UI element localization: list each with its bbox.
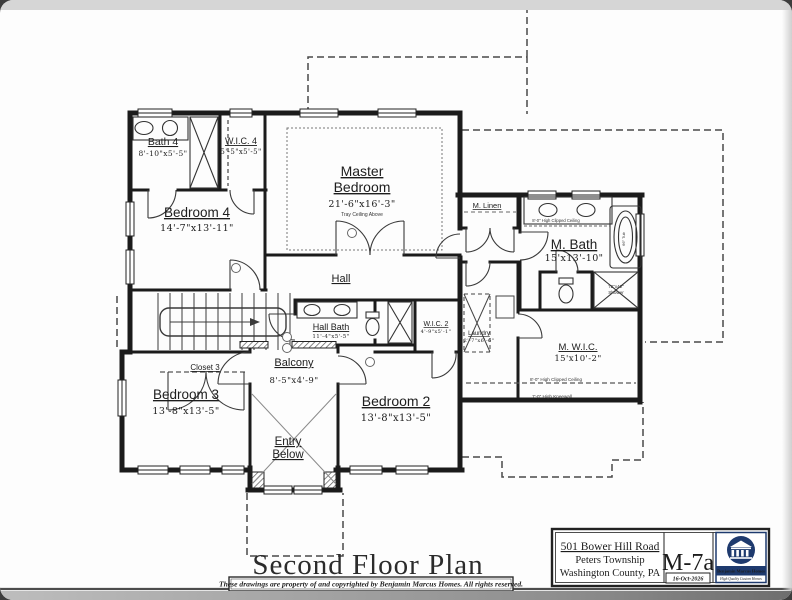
room-label-laundry: Laundry [468,331,490,337]
room-dims-bedroom2: 13'-8"x13'-5" [361,413,431,424]
sink-icon [163,121,178,136]
room-label-entry-2: Below [272,449,304,461]
room-label-hall: Hall [332,273,351,285]
room-label-bedroom2: Bedroom 2 [362,393,431,409]
room-dims-bedroom4: 14'-7"x13'-11" [160,223,234,234]
room-label-master-2: Bedroom [334,179,391,195]
logo-company-name: Benjamin Marcus Homes [717,569,765,574]
door-arc [518,314,542,338]
room-label-bath4: Bath 4 [148,136,179,148]
room-dims-wic4: 5'-5"x5'-5" [220,148,261,156]
title-block: 501 Bower Hill Road Peters Township Wash… [552,529,769,586]
toilet-icon [135,122,153,135]
room-label-mbath: M. Bath [551,237,598,252]
window [126,250,134,284]
kneewall-note: 7'-0" High Kneewall [532,394,572,399]
room-dims-laundry: 2'-7"x6'-6" [464,338,495,344]
company-logo: Benjamin Marcus Homes High Quality Custo… [716,533,766,583]
address-line2: Peters Township [575,555,644,566]
room-label-wic4: W.I.C. 4 [225,136,257,146]
floor-plan-svg: Bath 4 8'-10"x5'-5" W.I.C. 4 5'-5"x5'-5"… [0,0,792,600]
door-arc [338,356,366,384]
room-dims-balcony: 8'-5"x4'-9" [269,376,318,386]
sink-icon [539,204,557,217]
window [118,380,126,416]
window [572,191,600,199]
window [300,109,338,117]
room-label-mwic: M. W.I.C. [558,342,597,353]
window [378,109,416,117]
logo-circle [727,536,755,564]
tray-ceiling-note: Tray Ceiling Above [341,212,383,218]
shower-size-note-2: Shower [608,290,624,295]
toilet-icon [559,278,573,303]
room-dims-hallbath: 11'-4"x5'-5" [312,334,349,340]
tub-size-note: 66" Tub [621,231,626,245]
clipped-ceiling-note-mwic: 8'-0" High Clipped Ceiling [530,377,582,382]
porch-pier [252,472,264,488]
shower-size-note-1: 72"x42" [608,284,624,289]
sheet-date: 16-Oct-2026 [673,577,704,583]
room-label-closet3: Closet 3 [190,363,220,372]
copyright-box: These drawings are property of and copyr… [219,577,523,591]
shower-icon [190,117,218,188]
logo-tagline: High Quality Custom Homes [719,577,762,581]
sink-icon [304,305,320,316]
sheet-number: M-7a [662,550,714,576]
window [126,202,134,236]
vanity [297,302,357,318]
window [528,191,556,199]
sink-icon [577,204,595,217]
room-label-entry-1: Entry [275,436,302,448]
room-dims-bedroom3: 13'-8"x13'-5" [152,406,219,417]
room-label-bedroom4: Bedroom 4 [164,205,231,220]
sink-icon [334,305,350,316]
door-arc [466,262,490,286]
copyright-notice: These drawings are property of and copyr… [219,580,523,589]
room-label-wic2: W.I.C. 2 [424,321,449,328]
window [180,466,210,474]
room-dims-wic2: 4'-9"x5'-1" [421,329,452,335]
room-dims-mwic: 15'x10'-2" [554,354,601,364]
window [396,466,428,474]
door-arc [432,352,456,378]
address-line3: Washington County, PA [560,568,661,579]
stair-direction-arrow [250,318,260,326]
plan-title: Second Floor Plan [252,549,483,581]
window [350,466,382,474]
porch-pier [324,472,336,488]
laundry-sink [496,296,514,318]
window [222,466,244,474]
scan-edge-right [782,0,792,600]
room-label-mlinen: M. Linen [473,201,502,210]
room-label-bedroom3: Bedroom 3 [153,387,219,402]
room-dims-bath4: 8'-10"x5'-5" [139,149,188,158]
door-arc [490,228,514,252]
room-label-balcony: Balcony [274,357,314,369]
toilet-icon [366,312,379,336]
scan-edge-bottom [0,591,792,600]
door-arc [466,228,490,252]
address-line1: 501 Bower Hill Road [561,541,660,553]
drawing-sheet: Bath 4 8'-10"x5'-5" W.I.C. 4 5'-5"x5'-5"… [0,0,792,600]
room-label-hallbath: Hall Bath [313,322,350,332]
linen-cabinet [388,302,412,343]
door-arc [230,190,254,214]
window [138,109,172,117]
room-dims-master: 21'-6"x16'-3" [328,199,395,210]
window [264,486,292,494]
room-dims-mbath: 15'x13'-10" [545,253,604,264]
door-arc [218,352,250,384]
window [138,466,168,474]
room-label-master-1: Master [341,163,384,179]
clipped-ceiling-note-mbath: 8'-0" High Clipped Ceiling [532,218,580,223]
window [294,486,322,494]
window [230,109,252,117]
